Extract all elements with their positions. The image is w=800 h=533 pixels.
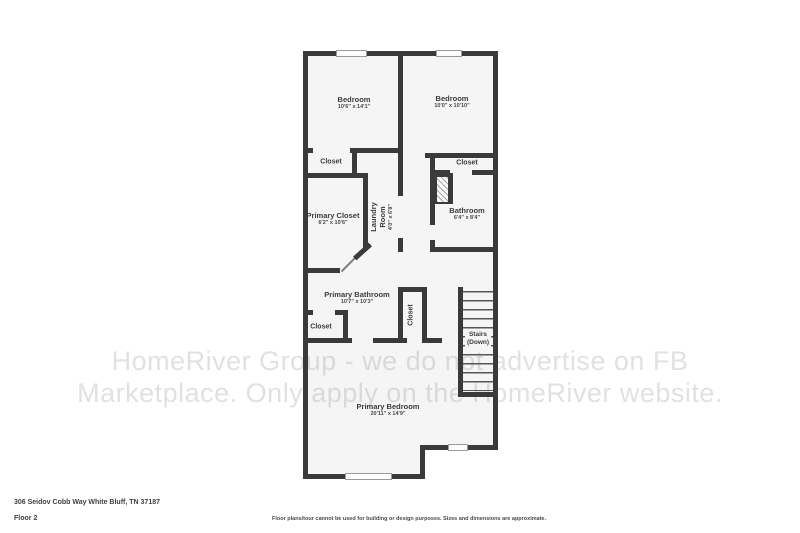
window	[436, 50, 462, 57]
property-address: 306 Seidov Cobb Way White Bluff, TN 3718…	[14, 499, 160, 506]
wall	[303, 148, 313, 153]
wall	[350, 148, 403, 153]
wall-bedroom-divider	[398, 56, 403, 196]
wall	[425, 153, 498, 158]
room-label-bath-closet: Closet	[310, 324, 331, 333]
room-label-laundry: Laundry Room 4'0" x 6'8"	[369, 199, 395, 235]
wall	[303, 310, 313, 315]
wall-stairs-left	[458, 287, 463, 397]
room-label-primary-bathroom: Primary Bathroom 10'7" x 10'3"	[324, 290, 389, 306]
wall	[343, 310, 348, 343]
room-label-primary-bedroom: Primary Bedroom 20'11" x 14'9"	[357, 402, 420, 418]
floor-label: Floor 2	[14, 515, 37, 522]
floor-plan-page: { "meta": { "address": "306 Seidov Cobb …	[0, 0, 800, 533]
room-label-closet-left: Closet	[320, 159, 341, 168]
window	[345, 473, 392, 480]
wall	[472, 170, 498, 175]
room-label-bathroom: Bathroom 6'4" x 8'4"	[449, 206, 484, 222]
shower-hatch	[435, 175, 450, 204]
watermark-line1: HomeRiver Group - we do not advertise on…	[0, 346, 800, 377]
wall-laundry-left	[363, 178, 368, 250]
wall	[303, 268, 340, 273]
disclaimer-text: Floor plans/tour cannot be used for buil…	[272, 516, 546, 522]
wall	[303, 173, 368, 178]
wall	[398, 238, 403, 252]
window	[336, 50, 367, 57]
room-label-bedroom-right: Bedroom 10'0" x 10'10"	[434, 94, 469, 110]
room-label-bedroom-left: Bedroom 10'6" x 14'1"	[338, 95, 371, 111]
room-label-closet-right: Closet	[456, 160, 477, 169]
wall	[373, 338, 407, 343]
wall	[303, 51, 308, 479]
wall	[420, 445, 425, 479]
room-label-hall-closet: Closet	[408, 304, 417, 325]
room-label-stairs: Stairs (Down)	[465, 330, 491, 348]
wall	[422, 338, 442, 343]
wall	[398, 287, 403, 343]
window	[448, 444, 468, 451]
wall-hall-closet-right	[422, 287, 427, 340]
wall-stairs-bottom	[458, 392, 498, 397]
room-label-primary-closet: Primary Closet 6'2" x 10'6"	[307, 211, 360, 227]
wall-bathroom-bottom	[430, 247, 498, 252]
